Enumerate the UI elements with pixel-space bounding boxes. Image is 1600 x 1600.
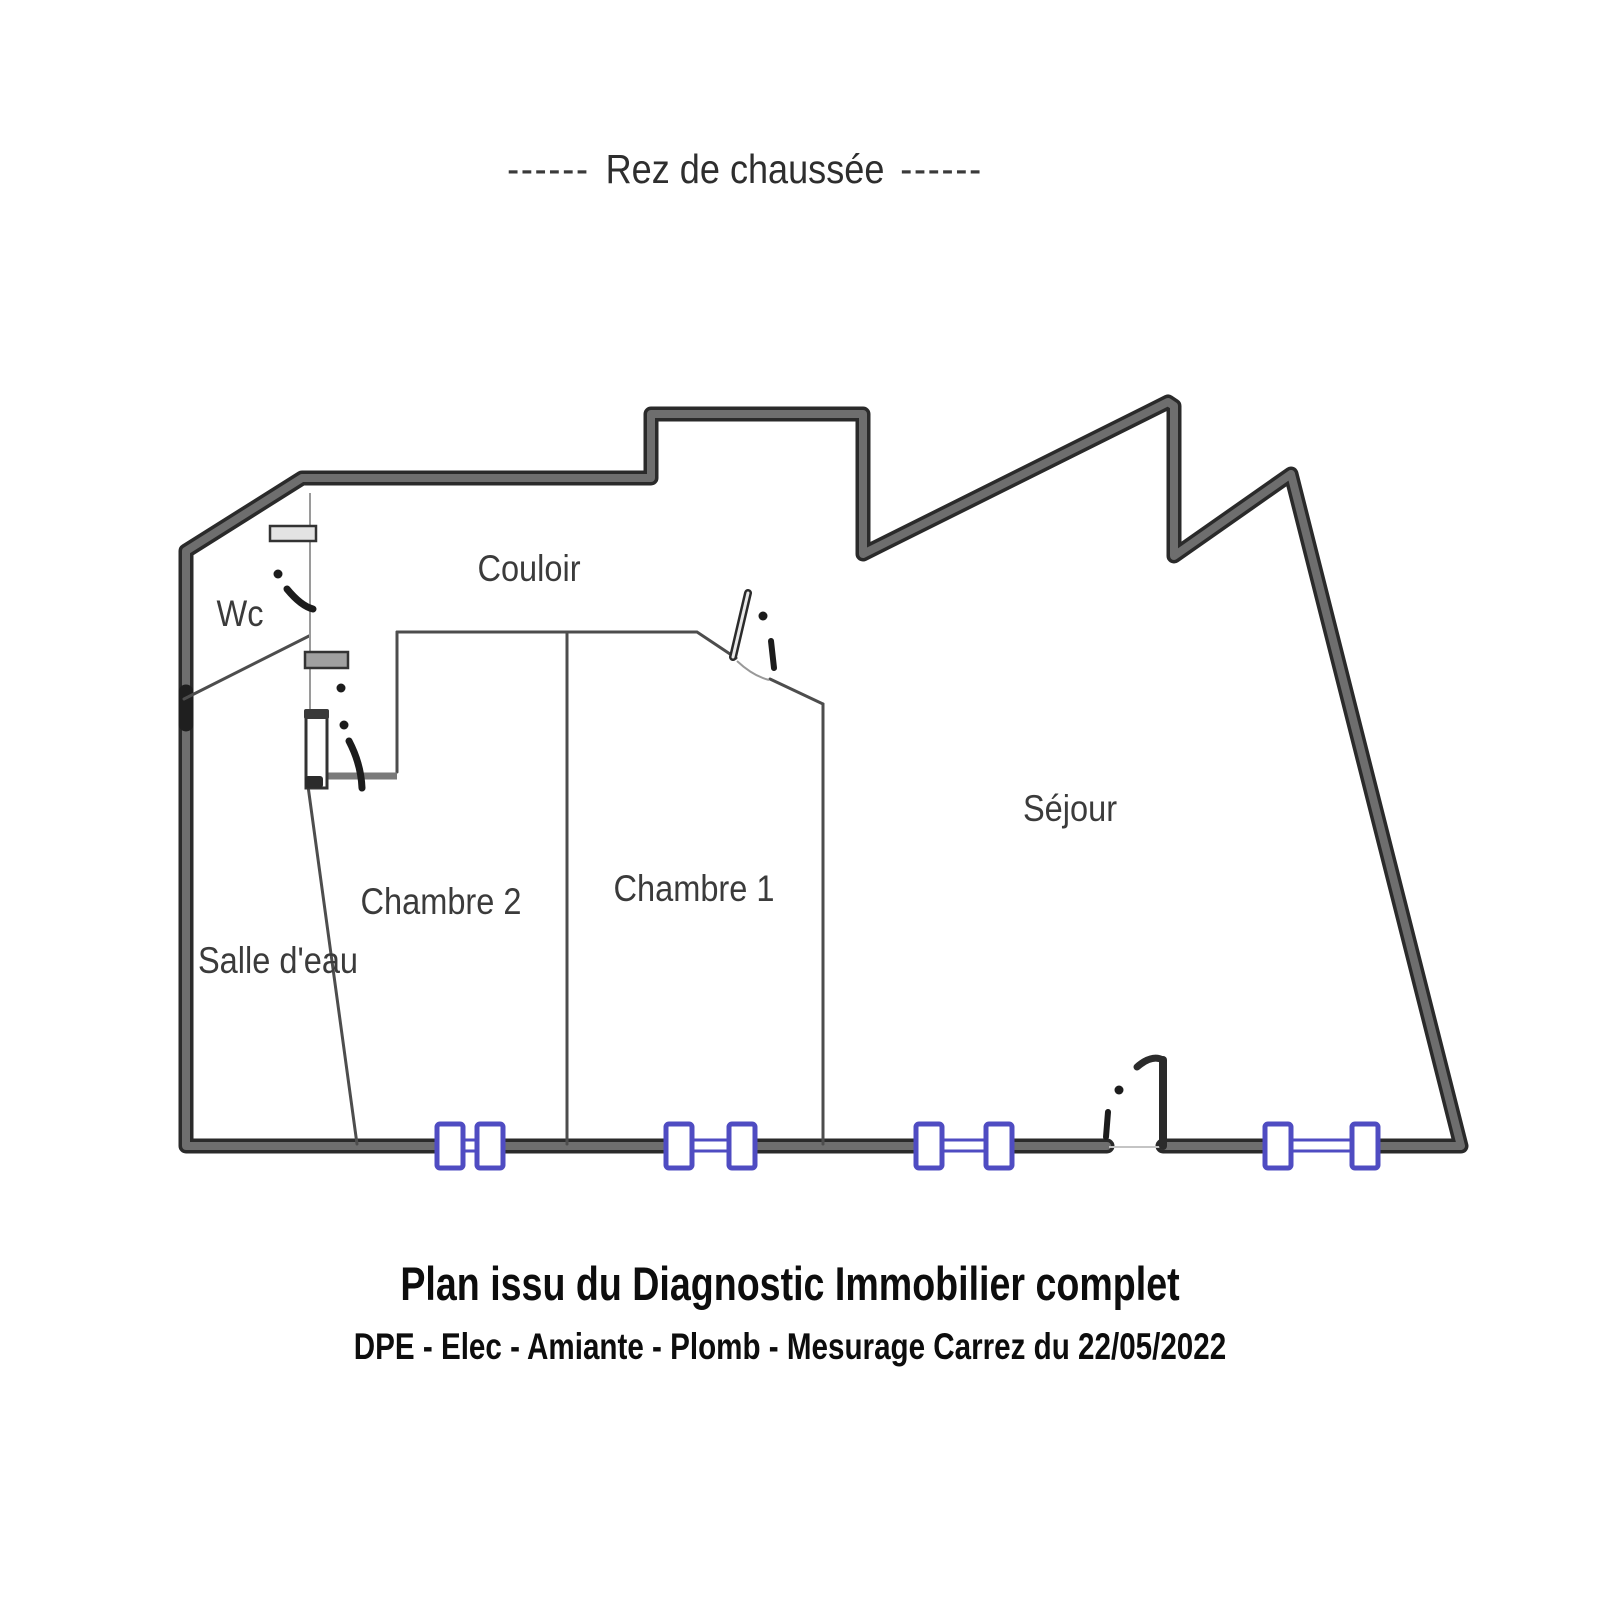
wc-swing-dot	[274, 570, 283, 579]
room-label-wc-text: Wc	[216, 593, 263, 634]
room-label-wc: Wc	[216, 593, 263, 634]
door-swing-arcs	[287, 589, 1108, 1137]
plan-title: ------Rez de chaussée------	[89, 146, 1400, 193]
chambre2-door-top-cap	[304, 709, 329, 719]
room-label-sejour-text: Séjour	[1023, 788, 1117, 829]
room-label-salledeau: Salle d'eau	[198, 940, 358, 981]
window-sash	[986, 1124, 1012, 1168]
chambre1-door-return-wall	[770, 679, 823, 704]
window-sash	[729, 1124, 755, 1168]
wc-door-panel	[270, 526, 316, 541]
room-label-chambre1: Chambre 1	[613, 868, 774, 909]
room-label-chambre2-text: Chambre 2	[360, 881, 521, 922]
window-sash	[1265, 1124, 1291, 1168]
title-right-dashes: ------	[900, 146, 983, 192]
wc-diagonal-wall	[184, 636, 309, 699]
window-gap	[690, 1133, 731, 1160]
salledeau-door-panel	[305, 652, 348, 668]
window-gap	[1289, 1133, 1354, 1160]
window-chambre2	[437, 1124, 503, 1168]
room-labels: Wc Couloir Chambre 2 Chambre 1 Séjour Sa…	[198, 548, 1117, 981]
chambre1-swing-dash	[771, 641, 774, 668]
footer-caption-line1: Plan issu du Diagnostic Immobilier compl…	[158, 1256, 1422, 1311]
room-label-chambre1-text: Chambre 1	[613, 868, 774, 909]
window-sejour-right	[1265, 1124, 1378, 1168]
window-sash	[666, 1124, 692, 1168]
title-left-dashes: ------	[507, 146, 590, 192]
chambre1-swing-dot	[759, 612, 768, 621]
window-chambre1	[666, 1124, 755, 1168]
room-label-salledeau-text: Salle d'eau	[198, 940, 358, 981]
room-label-couloir: Couloir	[477, 548, 580, 589]
window-sash	[477, 1124, 503, 1168]
window-sash	[437, 1124, 463, 1168]
window-sejour-left	[916, 1124, 1012, 1168]
entrance-swing-dash	[1106, 1112, 1108, 1137]
room-label-couloir-text: Couloir	[477, 548, 580, 589]
window-sash	[916, 1124, 942, 1168]
entrance-swing-dot	[1115, 1086, 1124, 1095]
salledeau-swing-dot-2	[340, 721, 349, 730]
salledeau-swing-arc	[349, 741, 362, 788]
room-label-chambre2: Chambre 2	[360, 881, 521, 922]
floor-plan-page: { "title": { "left_dashes": "------", "t…	[0, 0, 1600, 1600]
title-text: Rez de chaussée	[606, 146, 885, 192]
salledeau-swing-dot-1	[337, 684, 346, 693]
door-swing-marks	[274, 570, 1124, 1095]
window-sash	[1352, 1124, 1378, 1168]
chambre1-door-leaf-core	[733, 593, 748, 657]
chambre1-swing-arc-faint	[737, 661, 769, 680]
footer-caption-line2: DPE - Elec - Amiante - Plomb - Mesurage …	[158, 1326, 1422, 1368]
chambre2-door-foot	[305, 776, 323, 788]
room-label-sejour: Séjour	[1023, 788, 1117, 829]
window-gap	[940, 1133, 988, 1160]
